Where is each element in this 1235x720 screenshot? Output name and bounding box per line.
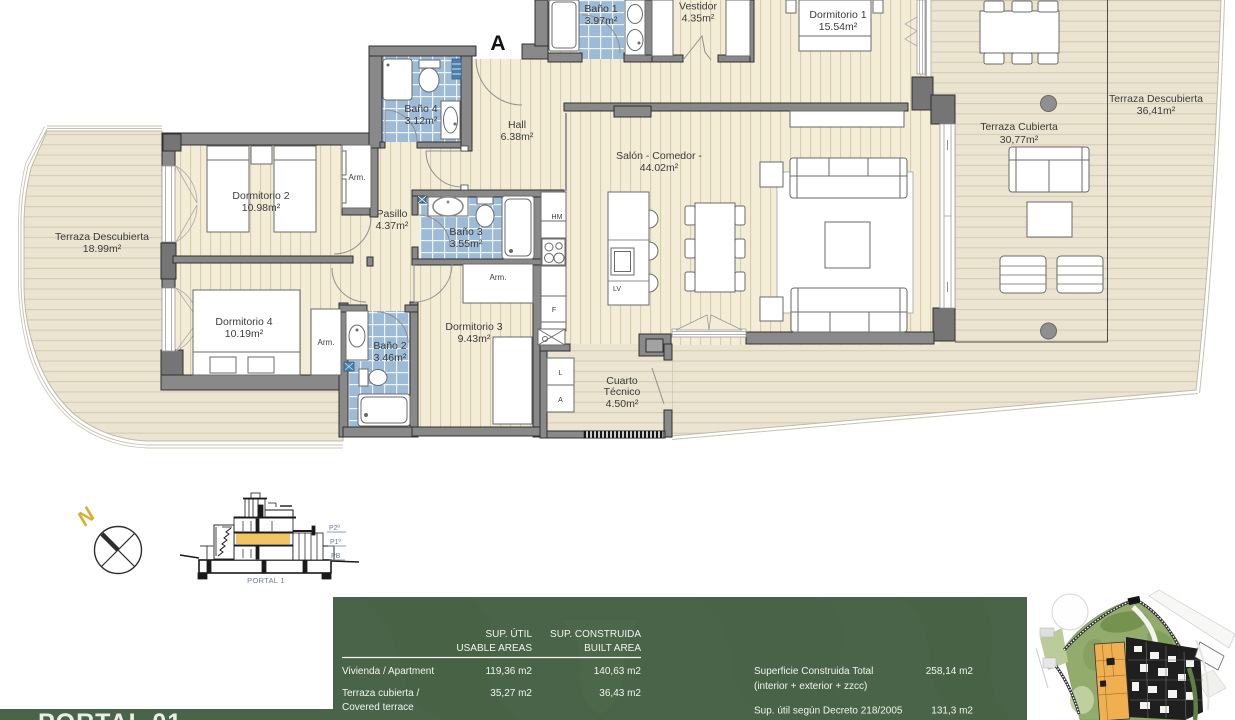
svg-text:USABLE AREAS: USABLE AREAS [456,643,532,654]
svg-text:15.54m²: 15.54m² [819,21,858,33]
svg-text:4.35m²: 4.35m² [682,13,715,25]
svg-text:Dormitorio 4: Dormitorio 4 [215,316,272,328]
svg-text:Terraza cubierta /: Terraza cubierta / [342,688,419,699]
svg-text:Arm.: Arm. [318,338,335,347]
svg-text:3.12m²: 3.12m² [405,115,438,127]
svg-text:Terraza Descubierta: Terraza Descubierta [1109,93,1203,105]
svg-text:9.43m²: 9.43m² [458,333,491,345]
svg-text:44.02m²: 44.02m² [640,162,679,174]
svg-text:10.98m²: 10.98m² [242,202,281,214]
svg-text:131,3 m2: 131,3 m2 [931,706,973,717]
svg-text:Arm.: Arm. [490,273,507,282]
svg-text:PORTAL 1: PORTAL 1 [247,576,285,585]
svg-text:Dormitorio 2: Dormitorio 2 [232,190,289,202]
svg-text:F: F [552,307,556,314]
svg-text:3.55m²: 3.55m² [450,238,483,250]
svg-text:SUP. CONSTRUIDA: SUP. CONSTRUIDA [550,629,641,640]
svg-text:Baño 4: Baño 4 [404,103,437,115]
svg-text:L: L [559,370,563,377]
svg-text:Covered terrace: Covered terrace [342,702,414,713]
svg-text:258,14 m2: 258,14 m2 [926,666,974,677]
svg-text:(interior + exterior + zzcc): (interior + exterior + zzcc) [754,681,867,692]
svg-text:Superficie Construida Total: Superficie Construida Total [754,666,873,677]
svg-text:Terraza Descubierta: Terraza Descubierta [55,231,149,243]
svg-text:HM: HM [552,214,563,221]
svg-text:Dormitorio 3: Dormitorio 3 [445,321,502,333]
svg-text:6.38m²: 6.38m² [501,131,534,143]
svg-text:18.99m²: 18.99m² [83,243,122,255]
svg-text:SUP. ÚTIL: SUP. ÚTIL [486,627,533,640]
svg-text:Dormitorio 1: Dormitorio 1 [809,9,866,21]
svg-text:P2º: P2º [329,525,341,532]
svg-text:Salón - Comedor -: Salón - Comedor - [616,150,702,162]
svg-text:30,77m²: 30,77m² [1000,134,1039,146]
svg-text:BUILT AREA: BUILT AREA [584,643,641,654]
svg-text:LV: LV [613,286,621,293]
svg-text:Vestidor: Vestidor [679,1,717,13]
svg-text:PORTAL 01: PORTAL 01 [38,709,182,720]
svg-text:Sup. útil según Decreto 218/20: Sup. útil según Decreto 218/2005 [754,706,903,717]
svg-text:Vivienda / Apartment: Vivienda / Apartment [342,666,434,677]
svg-text:Baño 2: Baño 2 [373,340,406,352]
svg-text:3.97m²: 3.97m² [585,15,618,27]
svg-text:36,41m²: 36,41m² [1137,105,1176,117]
svg-text:Técnico: Técnico [604,386,641,398]
svg-text:4.50m²: 4.50m² [606,398,639,410]
svg-text:Terraza Cubierta: Terraza Cubierta [980,121,1058,133]
svg-text:119,36 m2: 119,36 m2 [485,666,532,677]
svg-text:A: A [558,397,563,404]
svg-text:A: A [490,32,505,55]
svg-text:4.37m²: 4.37m² [376,220,409,232]
svg-text:Baño 3: Baño 3 [449,226,482,238]
svg-text:36,43 m2: 36,43 m2 [599,688,641,699]
svg-text:140,63 m2: 140,63 m2 [594,666,642,677]
svg-text:10.19m²: 10.19m² [225,328,264,340]
svg-text:P1º: P1º [330,539,342,546]
svg-text:PB: PB [331,553,341,560]
svg-text:35,27 m2: 35,27 m2 [490,688,532,699]
svg-text:Baño 1: Baño 1 [584,3,617,15]
svg-text:Hall: Hall [508,119,526,131]
svg-text:3.46m²: 3.46m² [374,352,407,364]
svg-text:Pasillo: Pasillo [377,208,408,220]
svg-text:Arm.: Arm. [349,173,366,182]
